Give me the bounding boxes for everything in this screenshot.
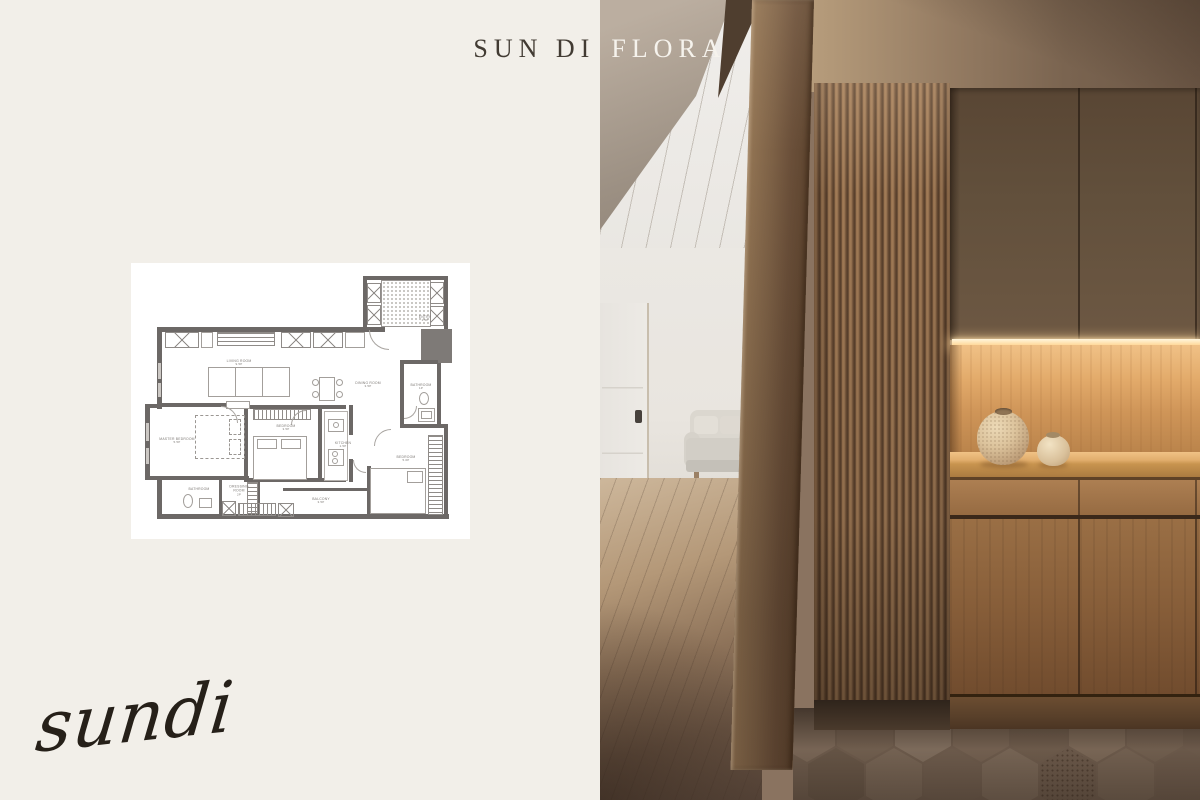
wall	[318, 405, 322, 482]
room-label-dining: DINING ROOM3.5P	[355, 381, 381, 389]
cabinet	[201, 332, 213, 348]
tv-cabinet	[217, 332, 275, 346]
cabinet-seam	[1078, 88, 1080, 340]
cabinet-stile	[950, 88, 960, 340]
area: 9.5P	[227, 363, 252, 367]
wall	[145, 404, 150, 480]
door-seam	[1078, 519, 1080, 694]
room-label-bedroom2: BEDROOM3.5P	[277, 424, 296, 432]
chair	[336, 379, 343, 386]
drawer-seam	[1078, 480, 1080, 515]
closet	[313, 332, 343, 348]
cabinet-plinth	[950, 697, 1200, 729]
slat-panel-base-shadow	[814, 700, 950, 730]
interior-photo	[600, 0, 1200, 800]
wardrobe-hatch	[428, 435, 443, 515]
upper-cabinets	[950, 88, 1200, 340]
door-handle	[635, 410, 642, 423]
dining-table	[319, 377, 335, 401]
room-label-kitchen: KITCHEN1.5P	[335, 441, 351, 449]
area: 1P	[411, 387, 432, 391]
entry-closet	[430, 306, 444, 326]
large-vase-mouth	[995, 408, 1012, 415]
entry-closet	[367, 283, 381, 303]
burner	[332, 451, 338, 457]
cabinet-seam	[1195, 88, 1197, 340]
entry-closet	[367, 305, 381, 325]
small-ceramic-vase	[1037, 435, 1070, 466]
room-label-bath2: BATHROOM1P	[411, 383, 432, 391]
window	[158, 383, 161, 397]
area: 1.5P	[419, 319, 431, 323]
page: { "brand": { "title_left": "SUN DI", "ti…	[0, 0, 1200, 800]
room-label-bath1: BATHROOM	[189, 487, 210, 491]
sofa-plan	[208, 367, 290, 397]
wall	[437, 363, 441, 427]
sofa-pillow	[720, 416, 742, 434]
wall	[444, 276, 448, 332]
bathtub-inner	[421, 411, 432, 419]
room-label-living: LIVING ROOM9.5P	[227, 359, 252, 367]
burner	[332, 458, 338, 464]
area: 5.0P	[397, 459, 416, 463]
rack-hatch	[238, 503, 276, 516]
niche-shadow	[950, 345, 962, 457]
toilet	[183, 494, 193, 508]
wall	[349, 405, 353, 435]
door-arc	[353, 460, 366, 473]
brand-signature: sundi	[32, 665, 238, 769]
wall	[283, 488, 371, 491]
room-label-master: MASTER BEDROOM5.5P	[159, 437, 194, 445]
area: 1.5P	[335, 445, 351, 449]
sofa-pillow	[694, 416, 718, 434]
chair	[336, 391, 343, 398]
room-label-balcony: BALCONY3.5P	[312, 497, 330, 505]
room-label-dressing: DRESSING ROOM2P	[229, 485, 249, 498]
entry-closet	[430, 282, 444, 304]
window	[158, 363, 161, 379]
area: 5.5P	[159, 441, 194, 445]
closet	[165, 332, 199, 348]
brand-title-left: SUN DI	[473, 34, 595, 63]
drawer-seam	[1195, 480, 1197, 515]
area: 3.5P	[277, 428, 296, 432]
small-vase-mouth	[1046, 432, 1060, 438]
wall	[400, 360, 438, 364]
window	[146, 448, 149, 464]
cabinet	[345, 332, 365, 348]
sink-bowl	[333, 422, 339, 428]
pillow	[281, 439, 301, 449]
closet	[222, 501, 236, 516]
door-arc	[404, 406, 417, 419]
door-arc	[369, 330, 389, 350]
floor-plan-card: LIVING ROOM9.5P DINING ROOM3.5P MASTER B…	[131, 263, 470, 539]
wall	[400, 424, 448, 428]
slat-panel-shading	[814, 83, 950, 705]
wall	[444, 428, 448, 518]
door-seam	[1195, 519, 1197, 694]
pillow	[407, 471, 423, 483]
brand-title-right: FLORA	[611, 34, 726, 63]
room-label-bedroom3: BEDROOM5.0P	[397, 455, 416, 463]
closet	[278, 503, 294, 517]
lower-cabinet-doors	[950, 519, 1200, 694]
window	[146, 423, 149, 441]
sink	[199, 498, 212, 508]
area: 2P	[229, 493, 249, 497]
large-ceramic-vase	[977, 411, 1029, 465]
pillow	[229, 439, 241, 455]
room-label-entry: ENTRY1.5P	[419, 315, 431, 323]
closet	[281, 332, 311, 348]
toilet	[419, 392, 429, 405]
drawer-row	[950, 480, 1200, 515]
pillow	[257, 439, 277, 449]
brand-title: SUN DIFLORA	[0, 34, 1200, 64]
door-arc	[374, 429, 391, 446]
shaft-block	[421, 329, 452, 363]
chair	[312, 379, 319, 386]
area: 3.5P	[355, 385, 381, 389]
span: BATHROOM	[189, 487, 210, 491]
chair	[312, 391, 319, 398]
wall	[157, 514, 449, 519]
area: 3.5P	[312, 501, 330, 505]
